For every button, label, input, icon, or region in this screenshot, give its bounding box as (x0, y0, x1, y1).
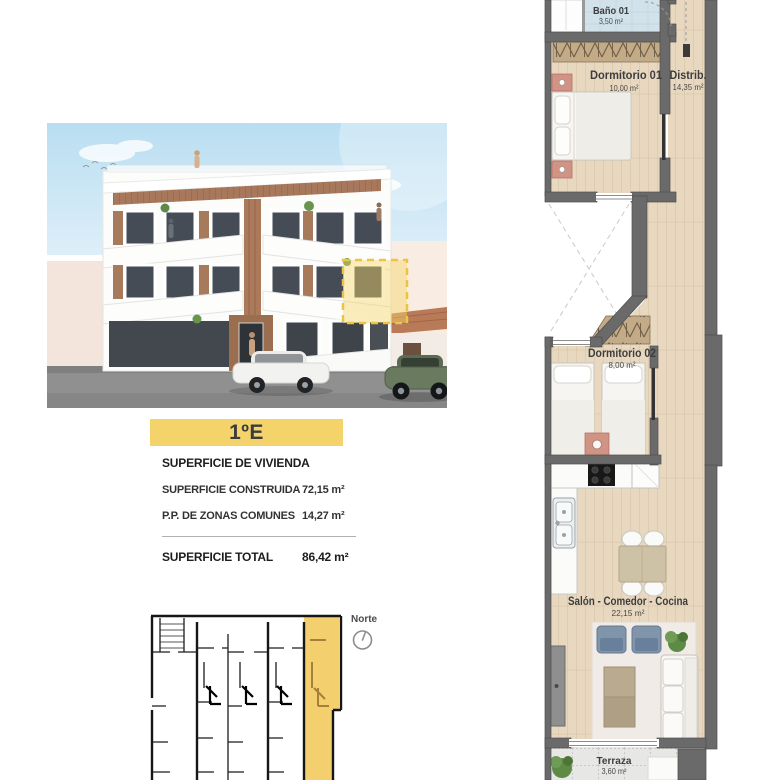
surface-row-label: SUPERFICIE CONSTRUIDA (162, 484, 302, 496)
divider (162, 536, 356, 537)
surface-total-row: SUPERFICIE TOTAL 86,42 m² (162, 550, 360, 564)
room-label: Dormitorio 01 (590, 70, 663, 82)
room-area: 3,50 m² (599, 17, 623, 26)
key-plan: Norte (145, 605, 390, 780)
room-area: 22,15 m² (612, 608, 645, 618)
unit-label: 1ºE (229, 421, 264, 445)
room-label: Baño 01 (593, 5, 629, 17)
surface-row-value: 72,15 m² (302, 484, 344, 496)
stairs-icon (160, 624, 184, 648)
room-area: 10,00 m² (610, 83, 639, 93)
surface-row-label: P.P. DE ZONAS COMUNES (162, 510, 302, 522)
flyer-page: 1ºE SUPERFICIE DE VIVIENDA SUPERFICIE CO… (0, 0, 780, 780)
room-area: 14,35 m² (673, 82, 704, 92)
room-label: Terraza (597, 755, 632, 767)
surface-total-label: SUPERFICIE TOTAL (162, 550, 302, 564)
surface-row: P.P. DE ZONAS COMUNES 14,27 m² (162, 510, 360, 522)
floor-plan: Baño 01 3,50 m² Dormitorio 01 10,00 m² D… (535, 0, 745, 780)
surface-title: SUPERFICIE DE VIVIENDA (162, 456, 360, 470)
north-compass-icon: Norte (351, 614, 378, 649)
unit-banner: 1ºE (150, 419, 343, 446)
unit-highlight-box (343, 260, 407, 323)
sliding-door (652, 368, 656, 420)
room-label: Salón - Comedor - Cocina (568, 596, 689, 608)
room-label: Distrib. (670, 70, 707, 82)
surface-total-value: 86,42 m² (302, 550, 348, 564)
surface-table: SUPERFICIE DE VIVIENDA SUPERFICIE CONSTR… (162, 456, 360, 564)
surface-row: SUPERFICIE CONSTRUIDA 72,15 m² (162, 484, 360, 496)
room-area: 8,00 m² (609, 360, 636, 370)
building-render (47, 123, 447, 408)
room-label: Dormitorio 02 (588, 348, 656, 360)
compass-label: Norte (351, 614, 378, 625)
surface-row-value: 14,27 m² (302, 510, 344, 522)
room-area: 3,60 m² (602, 767, 627, 776)
sliding-door (662, 114, 666, 160)
door-symbols (206, 686, 292, 704)
